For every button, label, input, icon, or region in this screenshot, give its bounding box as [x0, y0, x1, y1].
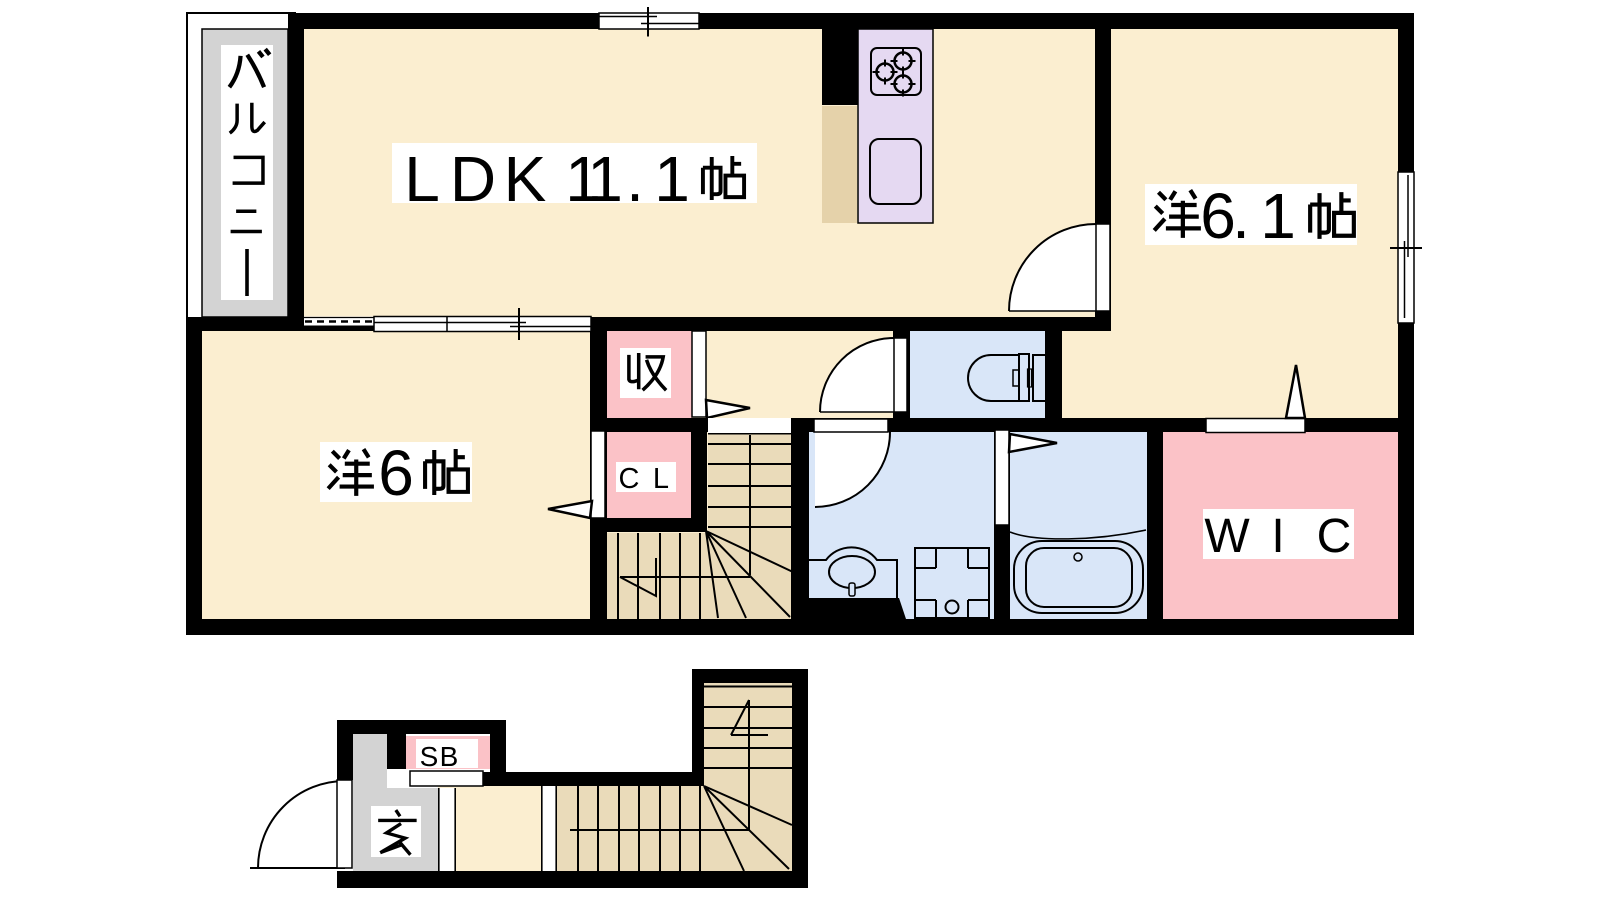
svg-text:1: 1: [1260, 180, 1296, 252]
svg-text:1: 1: [654, 143, 690, 215]
svg-text:S: S: [420, 741, 439, 772]
svg-text:K: K: [504, 143, 547, 215]
svg-text:6: 6: [378, 437, 414, 509]
svg-text:I: I: [1271, 510, 1284, 563]
svg-text:C: C: [619, 463, 640, 495]
svg-text:D: D: [450, 143, 496, 215]
svg-text:.: .: [1232, 180, 1250, 252]
svg-text:W: W: [1204, 510, 1250, 563]
svg-text:L: L: [404, 143, 440, 215]
svg-text:L: L: [653, 463, 669, 495]
svg-text:.: .: [626, 143, 644, 215]
svg-text:C: C: [1317, 510, 1352, 563]
svg-text:6: 6: [1200, 180, 1236, 252]
svg-text:B: B: [440, 741, 459, 772]
svg-text:1: 1: [587, 143, 623, 215]
